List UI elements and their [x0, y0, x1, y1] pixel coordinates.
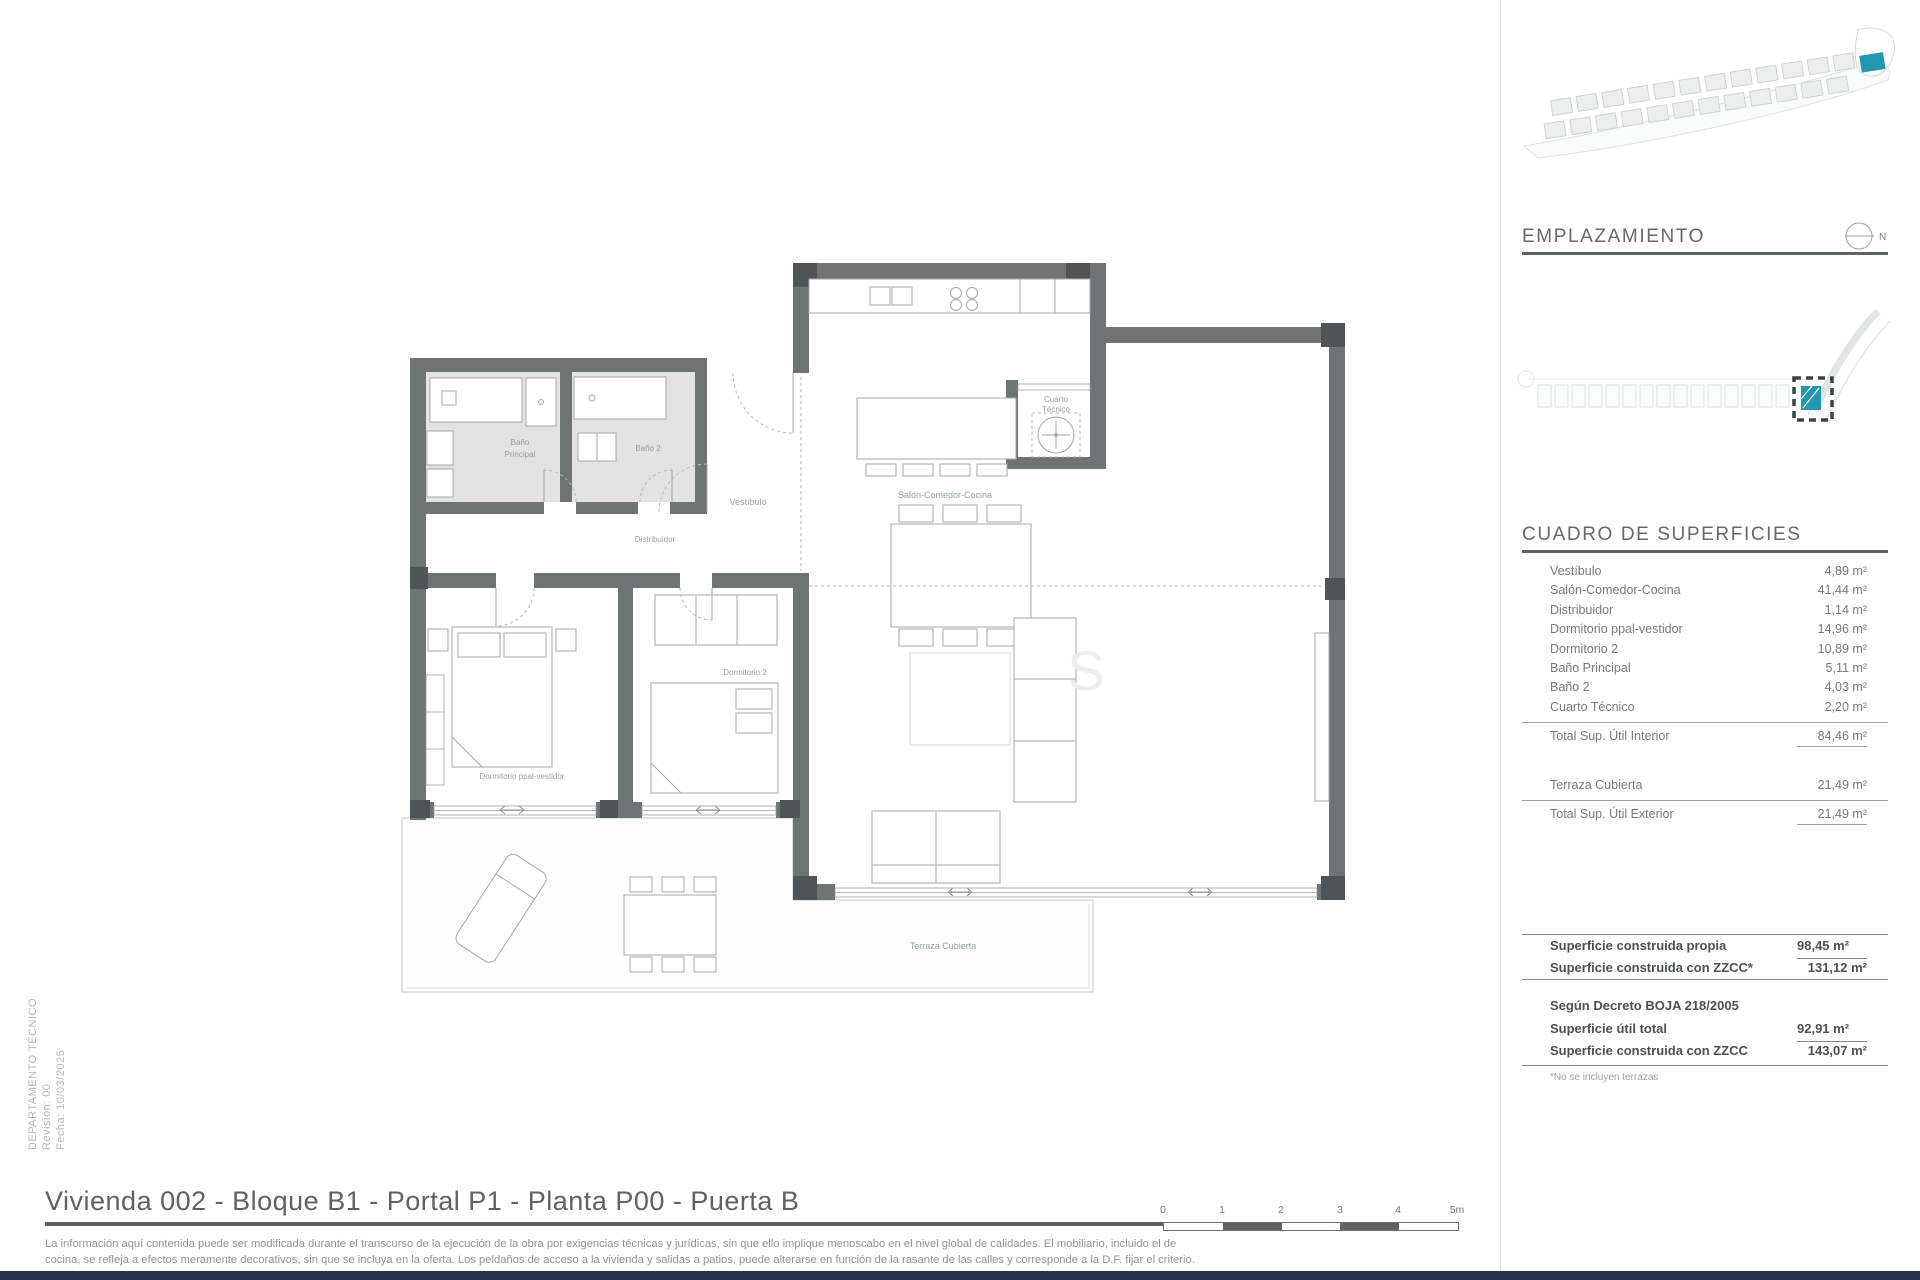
aerial-site-render: [1510, 8, 1910, 188]
table-row: Salón-Comedor-Cocina41,44 m²: [1522, 581, 1888, 600]
site-plan: [1510, 283, 1910, 433]
terrace-table: [624, 895, 716, 955]
scale-tick-label: 2: [1278, 1204, 1284, 1216]
scale-tick-label: 5m: [1450, 1204, 1465, 1216]
bedroom-2: [651, 595, 778, 793]
disclaimer: La información aquí contenida puede ser …: [45, 1237, 1195, 1268]
divider-line: [1522, 1065, 1888, 1066]
built-zzcc-row: Superficie construida con ZZCC*131,12 m²: [1522, 957, 1888, 979]
location-marker: [1801, 386, 1821, 410]
footnote: *No se incluyen terrazas: [1522, 1072, 1888, 1083]
bottom-accent-bar: [0, 1271, 1920, 1280]
label-bano-ppal: Baño: [511, 438, 530, 447]
label-bano2: Baño 2: [635, 444, 661, 453]
revision-label: Revisión: 00: [40, 998, 54, 1150]
label-terraza: Terraza Cubierta: [910, 941, 977, 951]
surfaces-title: CUADRO DE SUPERFICIES: [1522, 524, 1802, 546]
built-own-row: Superficie construida propia98,45 m²: [1522, 935, 1888, 957]
scale-tick-label: 0: [1160, 1204, 1166, 1216]
divider-line: [1522, 979, 1888, 980]
dining-area: [891, 505, 1031, 646]
watermark-letter: S: [1067, 639, 1104, 702]
scale-bar: [1163, 1222, 1459, 1231]
label-dorm-ppal: Dormitorio ppal-vestidor: [480, 772, 565, 781]
total-exterior-row: Total Sup. Útil Exterior21,49 m²: [1522, 801, 1888, 827]
floor-plan: S Baño Principal Baño 2 Vestíbulo Salón-…: [400, 255, 1380, 1015]
built-zzcc2-row: Superficie construida con ZZCC143,07 m²: [1522, 1040, 1888, 1062]
table-row: Baño Principal5,11 m²: [1522, 659, 1888, 678]
total-interior-row: Total Sup. Útil Interior84,46 m²: [1522, 723, 1888, 749]
emplazamiento-title: EMPLAZAMIENTO: [1522, 226, 1705, 248]
label-vestibulo: Vestíbulo: [729, 497, 766, 507]
svg-text:Principal: Principal: [505, 450, 536, 459]
terraza-row: Terraza Cubierta21,49 m²: [1522, 776, 1888, 795]
emplazamiento-rule: [1522, 252, 1888, 255]
title-rule: [45, 1222, 1163, 1226]
disclaimer-line-2: cocina, se refleja a efectos meramente d…: [45, 1253, 1195, 1269]
table-row: Baño 24,03 m²: [1522, 678, 1888, 697]
sheet-meta: DEPARTAMENTO TÉCNICO Revisión: 00 Fecha:…: [26, 998, 68, 1150]
page-title: Vivienda 002 - Bloque B1 - Portal P1 - P…: [45, 1186, 799, 1217]
decree-title: Según Decreto BOJA 218/2005: [1522, 994, 1888, 1018]
kitchen-island: [857, 398, 1016, 459]
site-buildings: [1538, 385, 1789, 407]
table-row: Dormitorio ppal-vestidor14,96 m²: [1522, 620, 1888, 639]
plan-sheet: S Baño Principal Baño 2 Vestíbulo Salón-…: [0, 0, 1920, 1280]
shower: [526, 378, 556, 426]
surfaces-table: Vestíbulo4,89 m² Salón-Comedor-Cocina41,…: [1522, 562, 1888, 827]
sidebar-divider: [1500, 0, 1501, 1271]
scale-tick-label: 4: [1395, 1204, 1401, 1216]
table-row: Dormitorio 210,89 m²: [1522, 640, 1888, 659]
table-row: Distribuidor1,14 m²: [1522, 601, 1888, 620]
util-total-row: Superficie útil total92,91 m²: [1522, 1018, 1888, 1040]
wardrobe: [426, 675, 444, 785]
department-label: DEPARTAMENTO TÉCNICO: [26, 998, 40, 1150]
wardrobe-2: [655, 595, 777, 645]
table-row: Vestíbulo4,89 m²: [1522, 562, 1888, 581]
label-distribuidor: Distribuidor: [635, 535, 676, 544]
svg-text:Técnico: Técnico: [1042, 405, 1071, 414]
date-label: Fecha: 10/03/2025: [54, 998, 68, 1150]
bathtub: [574, 377, 666, 419]
tv-bench: [1315, 633, 1329, 801]
label-cuarto: Cuarto: [1044, 395, 1069, 404]
toilet: [427, 431, 453, 465]
svg-text:N: N: [1879, 232, 1886, 243]
disclaimer-line-1: La información aquí contenida puede ser …: [45, 1237, 1195, 1253]
north-compass-icon: N: [1843, 219, 1899, 255]
dining-table: [891, 524, 1031, 627]
label-salon: Salón-Comedor-Cocina: [898, 490, 992, 500]
table-row: Cuarto Técnico2,20 m²: [1522, 698, 1888, 717]
label-dorm2: Dormitorio 2: [723, 668, 767, 677]
scale-tick-label: 3: [1337, 1204, 1343, 1216]
surfaces-rule: [1522, 550, 1888, 553]
built-surfaces-block: Superficie construida propia98,45 m² Sup…: [1522, 934, 1888, 1083]
scale-tick-label: 1: [1219, 1204, 1225, 1216]
